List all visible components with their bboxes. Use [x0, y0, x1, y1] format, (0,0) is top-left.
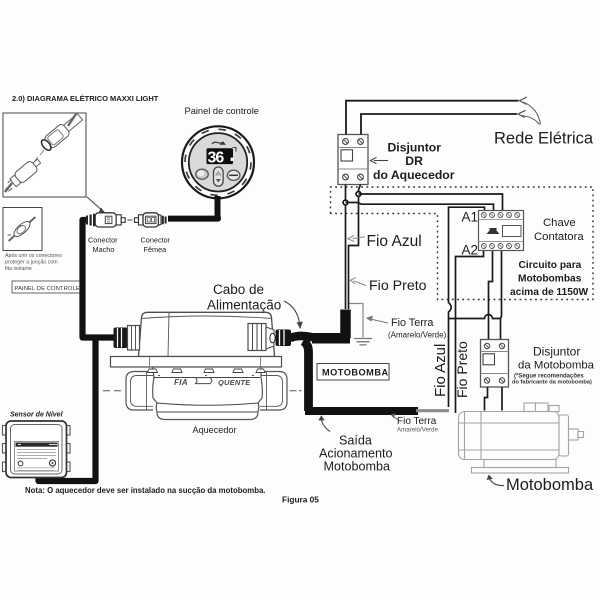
svg-text:Disjuntor: Disjuntor: [388, 141, 442, 155]
svg-text:Amarelo/Verde: Amarelo/Verde: [397, 427, 438, 434]
svg-text:da Motobomba: da Motobomba: [518, 360, 595, 372]
svg-text:QUENTE: QUENTE: [218, 378, 251, 387]
svg-text:DR: DR: [405, 154, 423, 168]
svg-text:do Aquecedor: do Aquecedor: [373, 168, 455, 182]
svg-text:Conector: Conector: [88, 236, 118, 245]
svg-text:2.0) DIAGRAMA ELÉTRICO MAXXI L: 2.0) DIAGRAMA ELÉTRICO MAXXI LIGHT: [12, 94, 159, 103]
svg-text:Fio Terra: Fio Terra: [391, 317, 433, 329]
svg-text:A1: A1: [462, 210, 479, 225]
svg-text:fita isolante: fita isolante: [5, 266, 32, 272]
svg-text:Motobombas: Motobombas: [518, 274, 582, 285]
svg-text:Aquecedor: Aquecedor: [193, 425, 237, 435]
svg-text:Acionamento: Acionamento: [319, 447, 393, 461]
svg-text:36: 36: [208, 149, 225, 166]
svg-text:Conector: Conector: [141, 236, 171, 245]
svg-text:acima de 1150W: acima de 1150W: [510, 287, 589, 298]
svg-text:Painel de controle: Painel de controle: [185, 106, 259, 116]
svg-text:MOTOBOMBA: MOTOBOMBA: [322, 368, 389, 378]
svg-text:Macho: Macho: [93, 245, 115, 254]
svg-text:proteger a junção com: proteger a junção com: [5, 260, 58, 266]
svg-text:Rede Elétrica: Rede Elétrica: [494, 130, 594, 148]
svg-text:Fio Preto: Fio Preto: [454, 341, 470, 398]
svg-text:Fêmea: Fêmea: [144, 245, 168, 254]
svg-text:Sensor de Nível: Sensor de Nível: [10, 412, 64, 419]
svg-text:Alimentação: Alimentação: [207, 298, 281, 313]
svg-text:A2: A2: [462, 243, 479, 258]
svg-text:Após unir os conectores: Após unir os conectores: [5, 253, 62, 259]
svg-text:Disjuntor: Disjuntor: [533, 345, 580, 359]
svg-text:Contatora: Contatora: [534, 231, 584, 243]
svg-text:Fio Azul: Fio Azul: [367, 233, 422, 250]
svg-text:Saída: Saída: [339, 434, 372, 448]
svg-text:(Amarelo/Verde): (Amarelo/Verde): [388, 331, 447, 340]
svg-text:do fabricante da motobomba): do fabricante da motobomba): [512, 380, 592, 386]
svg-text:Fio Azul: Fio Azul: [432, 344, 449, 397]
svg-text:FIA: FIA: [174, 378, 188, 387]
svg-text:Motobomba: Motobomba: [324, 460, 391, 474]
svg-text:PAINEL DE CONTROLE: PAINEL DE CONTROLE: [15, 286, 80, 292]
svg-text:Fio Preto: Fio Preto: [369, 278, 427, 294]
svg-text:Chave: Chave: [543, 217, 576, 229]
svg-text:Nota: O aquecedor deve ser ins: Nota: O aquecedor deve ser instalado na …: [25, 486, 265, 495]
svg-text:Motobomba: Motobomba: [506, 476, 594, 494]
svg-text:Fio Terra: Fio Terra: [397, 416, 437, 427]
svg-text:Circuito para: Circuito para: [519, 260, 582, 271]
svg-text:Cabo de: Cabo de: [213, 282, 264, 297]
svg-text:Figura 05: Figura 05: [282, 495, 319, 505]
